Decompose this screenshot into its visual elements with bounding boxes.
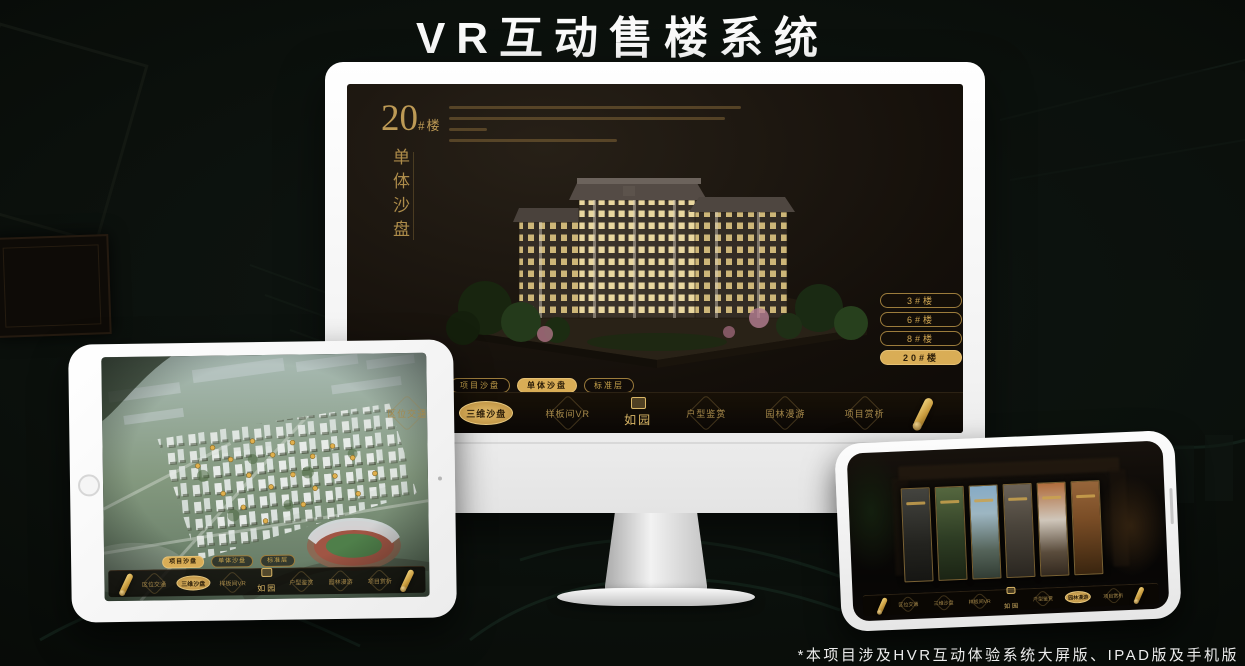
nav-item-3d-sandbox[interactable]: 三维沙盘 bbox=[178, 576, 208, 589]
nav-item-location[interactable]: 区位交通 bbox=[382, 403, 432, 424]
logo-seal-icon bbox=[631, 397, 646, 409]
nav-item-3d-sandbox[interactable]: 三维沙盘 bbox=[461, 403, 511, 424]
tablet: 项目沙盘 单体沙盘 标准层 区位交通 三维沙盘 样板间VR 如园 户型鉴赏 园林… bbox=[68, 339, 457, 622]
tab-project-sandbox[interactable]: 项目沙盘 bbox=[450, 378, 510, 393]
home-button[interactable] bbox=[78, 474, 100, 496]
phone: 区位交通 三维沙盘 样板间VR 如园 户型鉴赏 园林漫游 项目赏析 bbox=[834, 430, 1182, 632]
gallery-panel[interactable] bbox=[935, 486, 968, 581]
brand-logo: 如园 bbox=[257, 568, 277, 596]
gate-beam bbox=[898, 457, 1120, 480]
volume-button[interactable] bbox=[1169, 488, 1174, 524]
tab-single-sandbox[interactable]: 单体沙盘 bbox=[517, 378, 577, 393]
view-tabs: 项目沙盘 单体沙盘 标准层 bbox=[450, 378, 634, 393]
nav-item-floorplans[interactable]: 户型鉴赏 bbox=[286, 575, 316, 588]
nav-item-3d-sandbox[interactable]: 三维沙盘 bbox=[931, 598, 955, 608]
nav-item-garden-tour[interactable]: 园林漫游 bbox=[326, 574, 356, 587]
scroll-menu-icon[interactable] bbox=[912, 397, 934, 430]
gallery-panel[interactable] bbox=[1037, 482, 1070, 577]
background-screenshot bbox=[1000, 70, 1245, 250]
brand-logo: 如园 bbox=[624, 397, 652, 429]
background-plaque bbox=[0, 234, 112, 338]
floor-button-20[interactable]: 20#楼 bbox=[880, 350, 962, 365]
monitor-stand bbox=[557, 513, 755, 606]
tab-standard-floor[interactable]: 标准层 bbox=[260, 555, 295, 567]
logo-seal-icon bbox=[1007, 587, 1016, 594]
nav-item-garden-tour[interactable]: 园林漫游 bbox=[760, 403, 810, 424]
nav-item-project-review[interactable]: 项目赏析 bbox=[840, 403, 890, 424]
poster-stage: VR互动售楼系统 20#楼 单体沙盘 bbox=[0, 0, 1245, 666]
logo-seal-icon bbox=[261, 568, 272, 577]
nav-item-garden-tour[interactable]: 园林漫游 bbox=[1066, 592, 1090, 602]
scroll-menu-icon[interactable] bbox=[1134, 586, 1145, 603]
building-render bbox=[427, 160, 887, 375]
tablet-screen: 项目沙盘 单体沙盘 标准层 区位交通 三维沙盘 样板间VR 如园 户型鉴赏 园林… bbox=[101, 353, 429, 602]
floor-button-8[interactable]: 8#楼 bbox=[880, 331, 962, 346]
nav-item-location[interactable]: 区位交通 bbox=[139, 577, 169, 590]
tab-single-sandbox[interactable]: 单体沙盘 bbox=[211, 555, 253, 568]
building-number: 20 bbox=[381, 98, 418, 139]
gallery-panel[interactable] bbox=[901, 487, 934, 582]
description-paragraph bbox=[449, 106, 749, 150]
floor-button-6[interactable]: 6#楼 bbox=[880, 312, 962, 327]
doorway-glow bbox=[1094, 474, 1168, 578]
tablet-navbar: 区位交通 三维沙盘 样板间VR 如园 户型鉴赏 园林漫游 项目赏析 bbox=[108, 566, 425, 597]
footnote: *本项目涉及HVR互动体验系统大屏版、IPAD版及手机版 bbox=[798, 644, 1239, 665]
nav-item-showroom-vr[interactable]: 样板间VR bbox=[967, 596, 993, 606]
building-subtitle: 单体沙盘 bbox=[387, 148, 412, 244]
brand-logo: 如园 bbox=[1003, 587, 1020, 614]
floor-button-3[interactable]: 3#楼 bbox=[880, 293, 962, 308]
phone-screen: 区位交通 三维沙盘 样板间VR 如园 户型鉴赏 园林漫游 项目赏析 bbox=[847, 440, 1170, 621]
nav-item-project-review[interactable]: 项目赏析 bbox=[1101, 591, 1125, 601]
floor-button-group: 3#楼 6#楼 8#楼 20#楼 bbox=[880, 293, 962, 369]
nav-item-showroom-vr[interactable]: 样板间VR bbox=[217, 576, 248, 589]
gallery-panel[interactable] bbox=[1071, 480, 1104, 575]
gallery-panel[interactable] bbox=[969, 484, 1002, 579]
page-title: VR互动售楼系统 bbox=[0, 2, 1245, 66]
heading-divider bbox=[413, 152, 414, 240]
camera-icon bbox=[438, 476, 442, 480]
scroll-menu-icon[interactable] bbox=[400, 569, 415, 591]
nav-item-floorplans[interactable]: 户型鉴赏 bbox=[681, 403, 731, 424]
nav-item-location[interactable]: 区位交通 bbox=[896, 599, 920, 609]
nav-item-showroom-vr[interactable]: 样板间VR bbox=[540, 403, 595, 424]
building-heading: 20#楼 bbox=[381, 100, 442, 137]
tab-standard-floor[interactable]: 标准层 bbox=[584, 378, 634, 393]
nav-item-project-review[interactable]: 项目赏析 bbox=[365, 574, 395, 587]
background-screenshot bbox=[1030, 280, 1245, 430]
tab-project-sandbox[interactable]: 项目沙盘 bbox=[162, 556, 204, 569]
gallery-panels bbox=[901, 480, 1104, 582]
nav-item-floorplans[interactable]: 户型鉴赏 bbox=[1031, 594, 1055, 604]
scroll-menu-icon[interactable] bbox=[877, 597, 888, 614]
building-number-suffix: #楼 bbox=[418, 118, 442, 133]
tablet-view-tabs: 项目沙盘 单体沙盘 标准层 bbox=[162, 555, 295, 569]
phone-navbar: 区位交通 三维沙盘 样板间VR 如园 户型鉴赏 园林漫游 项目赏析 bbox=[863, 583, 1160, 616]
scroll-menu-icon[interactable] bbox=[119, 573, 134, 595]
gallery-panel[interactable] bbox=[1003, 483, 1036, 578]
